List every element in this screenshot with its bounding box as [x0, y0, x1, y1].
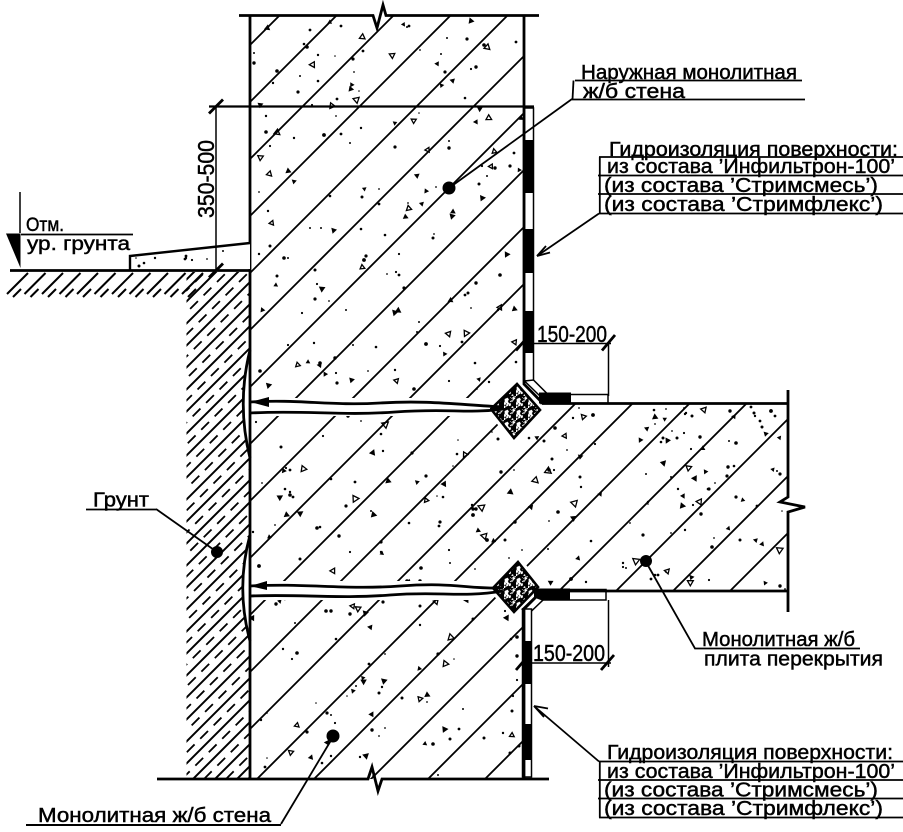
svg-text:150-200: 150-200	[533, 640, 605, 666]
svg-text:Монолитная ж/б стена: Монолитная ж/б стена	[38, 805, 272, 827]
svg-text:Грунт: Грунт	[93, 490, 149, 512]
svg-text:Отм.: Отм.	[26, 215, 64, 236]
svg-text:350-500: 350-500	[193, 140, 219, 218]
svg-text:плита перекрытия: плита перекрытия	[704, 649, 883, 671]
svg-text:150-200: 150-200	[537, 321, 607, 347]
svg-text:ур. грунта: ур. грунта	[27, 234, 131, 255]
